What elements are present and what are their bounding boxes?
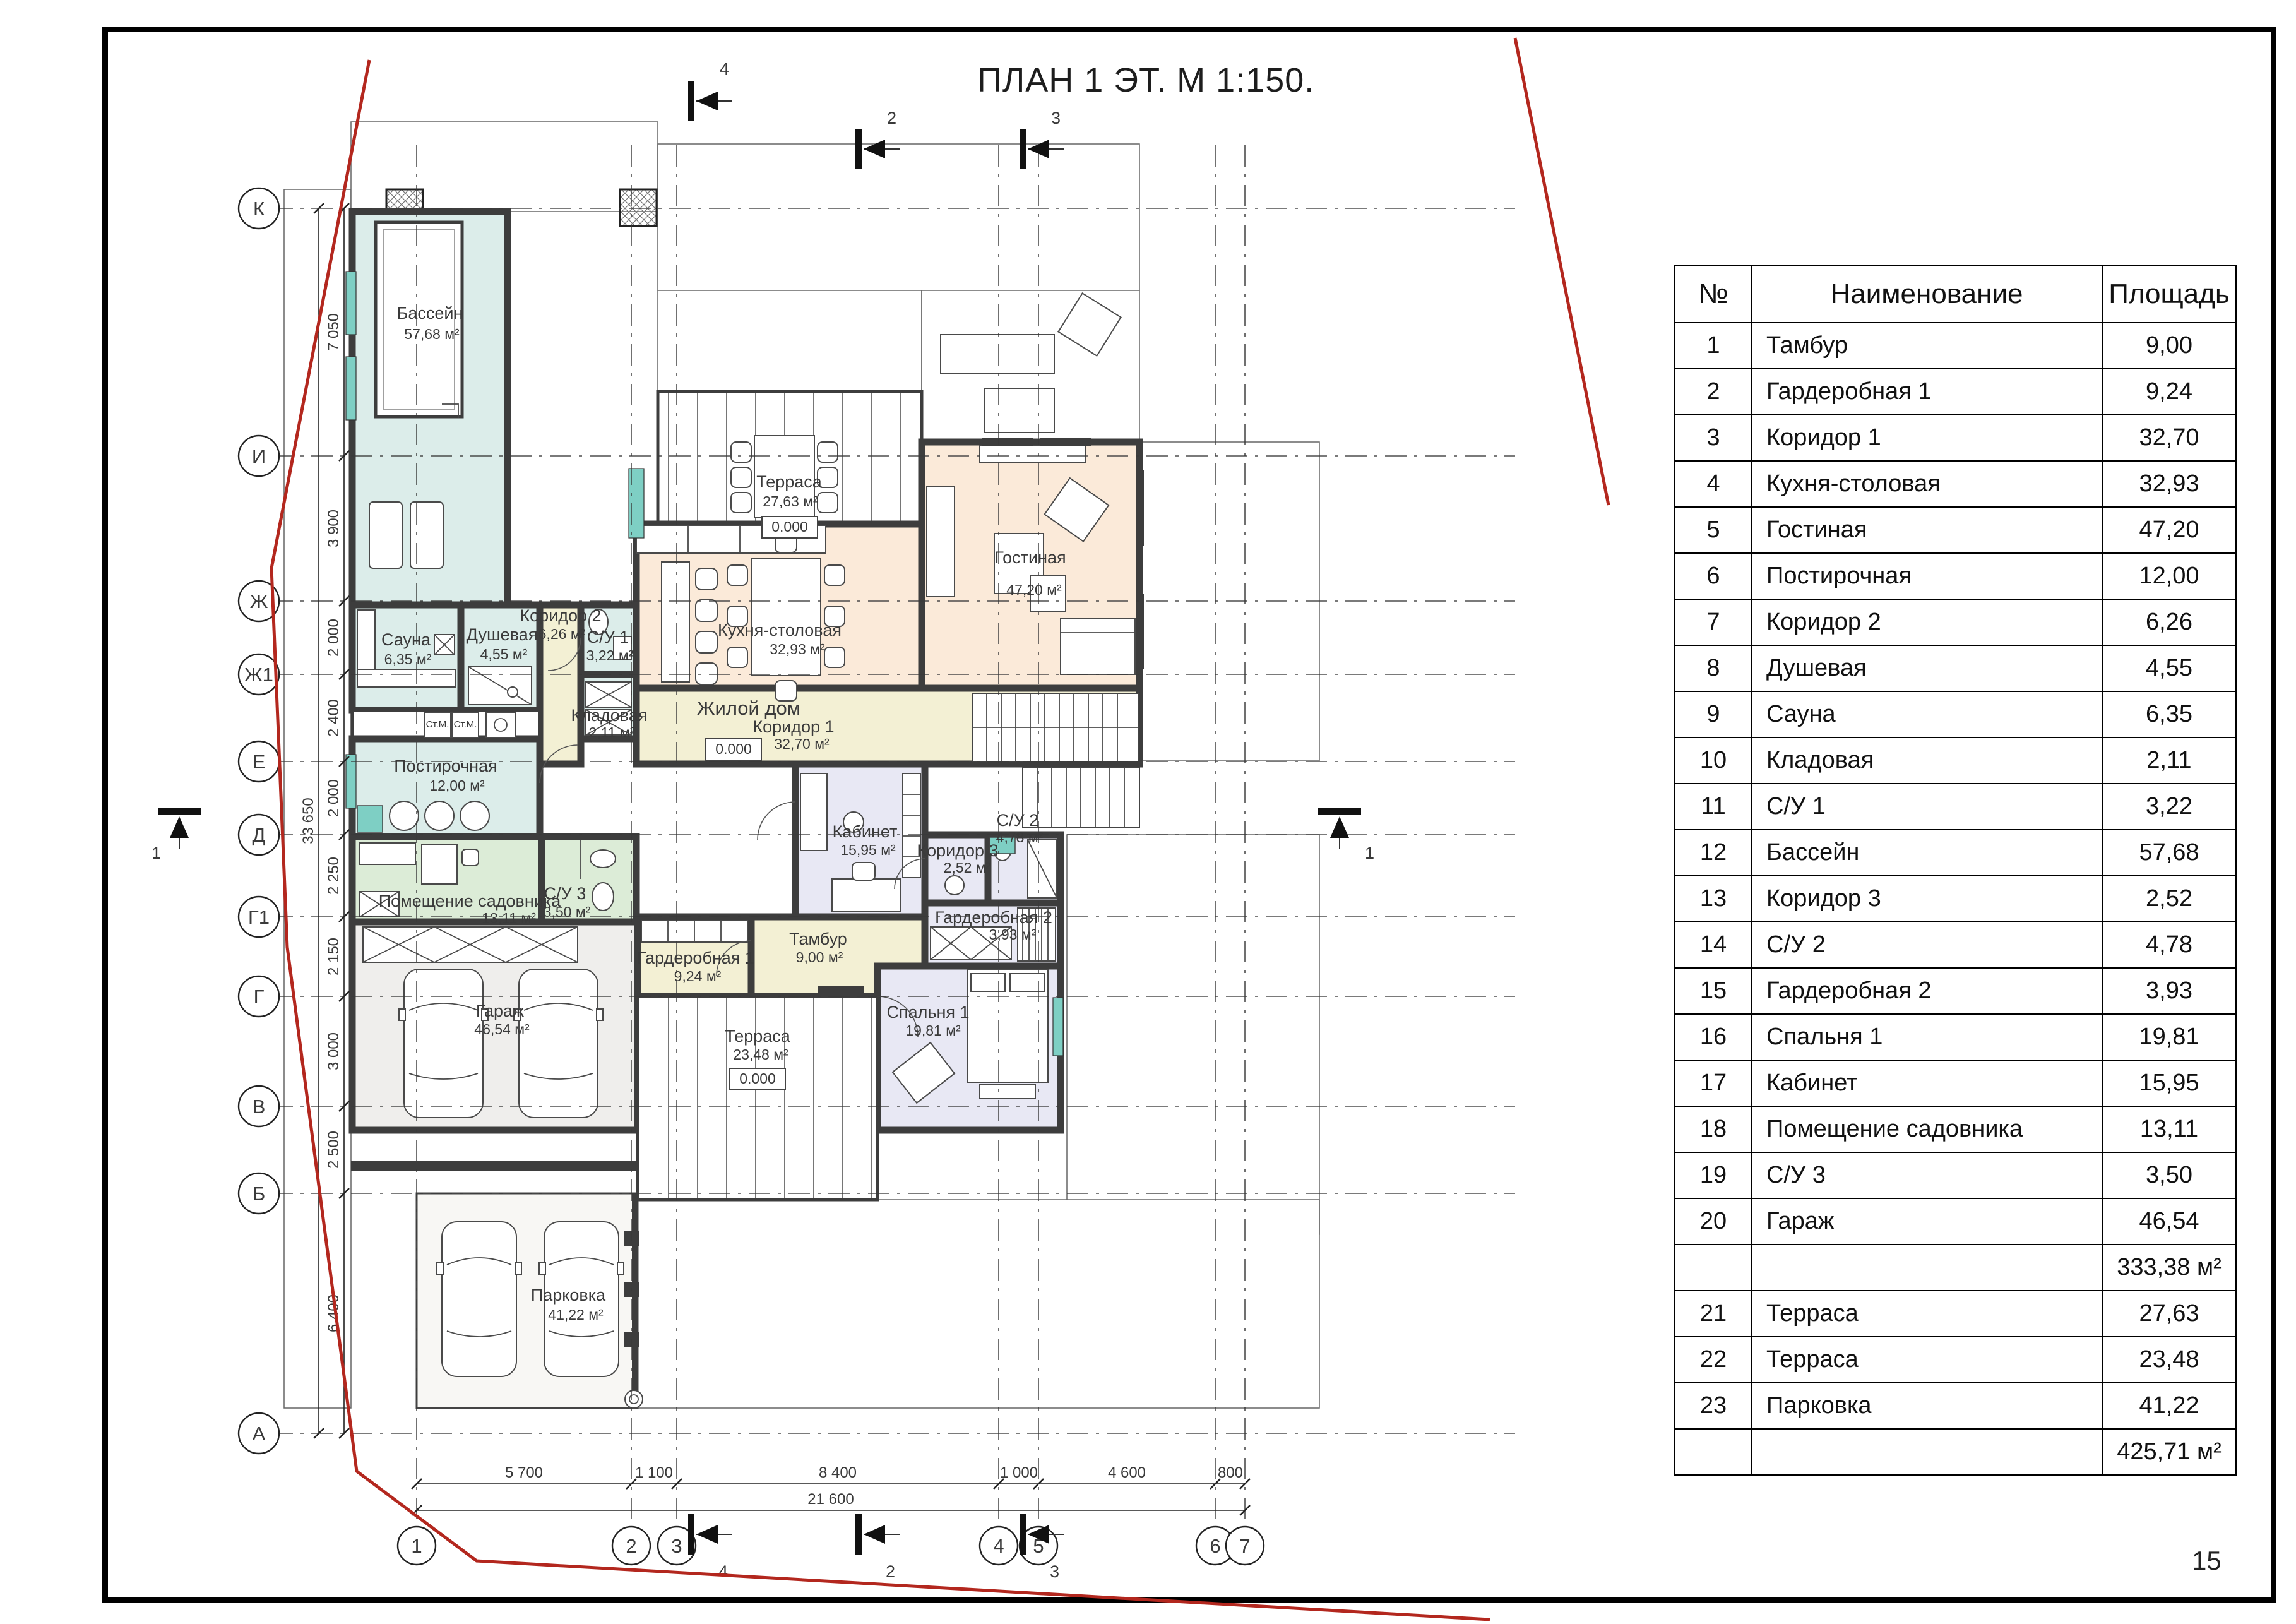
stool xyxy=(696,600,717,621)
chair xyxy=(818,493,838,513)
room-label: Гардеробная 2 xyxy=(935,908,1052,927)
room-area: 57,68 м² xyxy=(404,326,460,342)
axis-bubbles-bottom: 1 2 3 4 5 6 7 xyxy=(398,1527,1264,1565)
section-number: 2 xyxy=(887,109,896,128)
tv-unit xyxy=(980,446,1086,462)
total-area: 425,71 м² xyxy=(2102,1429,2236,1475)
lounger xyxy=(410,502,443,568)
window xyxy=(1053,998,1063,1056)
chair xyxy=(731,442,751,462)
table-row: 7Коридор 26,26 xyxy=(1675,599,2236,645)
room-area: 27,63 м² xyxy=(763,493,818,510)
dim-total: 33 650 xyxy=(300,797,317,844)
axis-bubbles-left: К И Ж Ж1 Е Д Г1 Г В Б А xyxy=(239,188,279,1454)
table-row: 2Гардеробная 19,24 xyxy=(1675,369,2236,415)
table-row: 12Бассейн57,68 xyxy=(1675,830,2236,876)
toilet xyxy=(590,850,616,868)
dining-table xyxy=(751,559,821,676)
table-header-row: № Наименование Площадь xyxy=(1675,266,2236,323)
outdoor-sofa xyxy=(985,388,1054,433)
room-area: 32,70 м² xyxy=(774,736,830,752)
room-area: 2,11 м² xyxy=(589,724,635,741)
dim: 1 100 xyxy=(635,1464,673,1481)
staircase xyxy=(972,693,1139,828)
pillow xyxy=(1010,974,1044,991)
stool xyxy=(696,568,717,590)
table-row: 15Гардеробная 23,93 xyxy=(1675,968,2236,1014)
room-label: С/У 2 xyxy=(997,811,1039,830)
patio-zone xyxy=(658,290,922,391)
room-label: Тамбур xyxy=(789,929,847,948)
room-area: 46,54 м² xyxy=(474,1021,530,1037)
table-row: 6Постирочная12,00 xyxy=(1675,553,2236,599)
room-area: 9,24 м² xyxy=(674,968,722,984)
room-label: Парковка xyxy=(531,1286,606,1305)
car xyxy=(399,969,488,1118)
desk xyxy=(832,879,900,912)
room-area: 2,52 м² xyxy=(944,859,991,876)
room-label: Коридор 1 xyxy=(752,717,834,736)
washer-drum xyxy=(425,801,454,830)
axis-label: Б xyxy=(253,1183,265,1205)
room-area: 6,26 м² xyxy=(538,626,586,642)
table-row: 3Коридор 132,70 xyxy=(1675,415,2236,461)
axis-label: И xyxy=(252,445,266,467)
stool xyxy=(696,631,717,653)
room-area: 32,93 м² xyxy=(770,641,825,657)
table-row: 22Терраса23,48 xyxy=(1675,1337,2236,1383)
lounger xyxy=(369,502,402,568)
dim: 3 000 xyxy=(325,1032,342,1070)
entry-door xyxy=(818,986,864,994)
hatch-roof-top-right xyxy=(658,144,1139,290)
table-row: 21Терраса27,63 xyxy=(1675,1291,2236,1337)
dim-total: 21 600 xyxy=(807,1491,854,1508)
level-mark: 0.000 xyxy=(715,741,752,757)
room-label: Кабинет xyxy=(833,822,898,841)
section-number: 3 xyxy=(1051,109,1061,128)
room-label: Коридор 2 xyxy=(520,606,601,625)
room-area: 3,22 м² xyxy=(586,647,634,664)
room-label: Гостиная xyxy=(994,548,1066,567)
room-label: Помещение садовника xyxy=(379,892,561,911)
table-row: 17Кабинет15,95 xyxy=(1675,1060,2236,1106)
table-row: 5Гостиная47,20 xyxy=(1675,507,2236,553)
desk-chair xyxy=(852,863,875,880)
axis-label: Д xyxy=(253,824,266,846)
room-area: 12,00 м² xyxy=(429,777,485,794)
axis-label: 4 xyxy=(993,1535,1004,1557)
stool xyxy=(696,663,717,684)
subtotal-area: 333,38 м² xyxy=(2102,1245,2236,1291)
room-label: Коридор 3 xyxy=(917,841,998,860)
dim: 2 500 xyxy=(325,1131,342,1169)
section-1-right: 1 xyxy=(1318,811,1374,863)
dim: 3 900 xyxy=(325,510,342,547)
axis-label: Е xyxy=(253,751,266,773)
chair xyxy=(818,442,838,462)
section-number: 1 xyxy=(152,844,161,863)
sink xyxy=(945,876,964,895)
axis-label: А xyxy=(253,1423,266,1445)
axis-label: 2 xyxy=(626,1535,636,1557)
room-area: 9,00 м² xyxy=(796,949,843,965)
table-row: 10Кладовая2,11 xyxy=(1675,737,2236,784)
room-area: 4,55 м² xyxy=(480,646,528,662)
sofa xyxy=(800,773,827,851)
table-row: 11С/У 13,22 xyxy=(1675,784,2236,830)
washer-label: Ст.М. xyxy=(426,719,449,730)
room-area: 6,35 м² xyxy=(384,651,432,667)
boundary-line-right xyxy=(1515,38,1609,505)
section-2-bottom: 2 xyxy=(859,1514,900,1581)
table-row: 4Кухня-столовая32,93 xyxy=(1675,461,2236,507)
drain-pit xyxy=(625,1390,643,1408)
chair xyxy=(462,849,479,866)
room-area: 3,93 м² xyxy=(989,926,1037,943)
room-area: 41,22 м² xyxy=(548,1306,604,1323)
table-total-row: 425,71 м² xyxy=(1675,1429,2236,1475)
section-number: 3 xyxy=(1050,1562,1059,1581)
room-label: Гардеробная 1 xyxy=(637,948,754,967)
retaining-wall xyxy=(351,1161,639,1171)
axis-label: Г1 xyxy=(248,906,270,928)
room-label: Гараж xyxy=(476,1001,524,1020)
table-row: 23Парковка41,22 xyxy=(1675,1383,2236,1429)
window xyxy=(346,357,356,420)
chair xyxy=(824,647,845,667)
sauna-bench xyxy=(357,610,375,669)
bottom-axes: 5 700 1 100 8 400 1 000 4 600 800 21 600… xyxy=(398,1464,1264,1565)
section-number: 4 xyxy=(720,59,729,78)
kitchen-island xyxy=(662,562,689,682)
room-label: С/У 3 xyxy=(544,884,586,903)
dim: 2 000 xyxy=(325,779,342,817)
section-1-left: 1 xyxy=(152,811,201,863)
room-label: Кладовая xyxy=(571,706,648,725)
section-number: 2 xyxy=(886,1562,895,1581)
room-area: 19,81 м² xyxy=(905,1022,961,1039)
chair xyxy=(731,493,751,513)
bottom-dimensions: 5 700 1 100 8 400 1 000 4 600 800 21 600 xyxy=(505,1464,1243,1508)
dim: 7 050 xyxy=(325,313,342,351)
washer-drum xyxy=(460,801,489,830)
dim: 800 xyxy=(1218,1464,1243,1481)
terrace-door xyxy=(982,438,1033,446)
room-label: Постирочная xyxy=(394,756,497,775)
level-mark: 0.000 xyxy=(739,1070,776,1087)
window xyxy=(346,755,356,808)
axis-label: 3 xyxy=(671,1535,682,1557)
drain xyxy=(508,687,518,697)
bench xyxy=(980,1085,1035,1099)
sofa xyxy=(1061,619,1135,674)
axis-label: К xyxy=(253,198,265,220)
room-label: Сауна xyxy=(381,630,431,649)
section-4-bottom: 4 xyxy=(691,1514,732,1581)
column-marker xyxy=(620,189,657,226)
axis-label: Г xyxy=(254,986,265,1008)
room-label: Душевая xyxy=(467,625,538,644)
table xyxy=(422,845,457,884)
terrace-door xyxy=(1040,438,1091,446)
chair xyxy=(824,565,845,585)
table-subtotal-row: 333,38 м² xyxy=(1675,1245,2236,1291)
col-header-num: № xyxy=(1675,266,1752,323)
axis-label: 1 xyxy=(411,1535,422,1557)
dim: 2 150 xyxy=(325,938,342,976)
drawing-sheet: ПЛАН 1 ЭТ. М 1:150. 15 xyxy=(0,0,2296,1624)
outdoor-sofa xyxy=(941,335,1054,374)
bench xyxy=(360,843,415,864)
axis-label: Ж xyxy=(250,590,268,612)
room-area: 4,78 м² xyxy=(996,829,1044,845)
room-label: Кухня-столовая xyxy=(718,621,842,640)
level-mark: 0.000 xyxy=(771,518,808,535)
hatch-east-south xyxy=(1067,835,1319,1234)
dim: 2 400 xyxy=(325,699,342,737)
laundry-basin xyxy=(357,806,383,832)
section-4-top: 4 xyxy=(691,59,732,121)
chair xyxy=(727,647,747,667)
room-label: Терраса xyxy=(756,472,823,491)
col-header-name: Наименование xyxy=(1752,266,2102,323)
axis-label: 6 xyxy=(1210,1535,1220,1557)
axis-label: 7 xyxy=(1239,1535,1250,1557)
building-label: Жилой дом xyxy=(697,697,800,719)
window xyxy=(1136,594,1144,669)
table-row: 18Помещение садовника13,11 xyxy=(1675,1106,2236,1152)
table-row: 20Гараж46,54 xyxy=(1675,1198,2236,1245)
hatch-south-apron xyxy=(638,1200,1319,1408)
room-area: 23,48 м² xyxy=(733,1046,788,1063)
dim: 2 000 xyxy=(325,619,342,657)
table-row: 8Душевая4,55 xyxy=(1675,645,2236,691)
room-area: 47,20 м² xyxy=(1006,582,1062,598)
table-row: 9Сауна6,35 xyxy=(1675,691,2236,737)
col-header-area: Площадь xyxy=(2102,266,2236,323)
dim: 1 000 xyxy=(1000,1464,1038,1481)
table-row: 19С/У 33,50 xyxy=(1675,1152,2236,1198)
room-schedule-table: № Наименование Площадь 1Тамбур9,00 2Гард… xyxy=(1674,265,2237,1476)
window xyxy=(346,272,356,335)
table-row: 13Коридор 32,52 xyxy=(1675,876,2236,922)
table-row: 1Тамбур9,00 xyxy=(1675,323,2236,369)
room-area: 3,50 м² xyxy=(544,904,591,920)
sink xyxy=(592,883,614,911)
washer-label: Ст.М. xyxy=(454,719,477,730)
room-area: 13,11 м² xyxy=(482,910,536,926)
car xyxy=(514,969,603,1118)
pillow xyxy=(971,974,1005,991)
dim: 5 700 xyxy=(505,1464,543,1481)
section-number: 1 xyxy=(1365,844,1374,863)
axis-label: Ж1 xyxy=(244,664,273,686)
chair xyxy=(731,467,751,487)
sauna-bench xyxy=(357,669,455,687)
table-row: 16Спальня 119,81 xyxy=(1675,1014,2236,1060)
car xyxy=(437,1222,521,1376)
washer-drum xyxy=(390,801,419,830)
window xyxy=(1136,470,1144,546)
dim: 2 250 xyxy=(325,857,342,895)
axis-label: В xyxy=(253,1096,266,1118)
dim: 4 600 xyxy=(1108,1464,1146,1481)
room-label: Терраса xyxy=(725,1027,791,1046)
laundry-sink xyxy=(486,712,515,737)
sofa xyxy=(927,486,955,597)
room-label: Бассейн xyxy=(397,304,463,323)
door-arc xyxy=(758,802,795,840)
room-area: 15,95 м² xyxy=(840,842,896,858)
chair xyxy=(727,565,747,585)
room-label: С/У 1 xyxy=(587,628,629,647)
dim: 8 400 xyxy=(819,1464,857,1481)
section-number: 4 xyxy=(718,1562,728,1581)
room-label: Спальня 1 xyxy=(886,1003,969,1022)
table-row: 14С/У 24,78 xyxy=(1675,922,2236,968)
